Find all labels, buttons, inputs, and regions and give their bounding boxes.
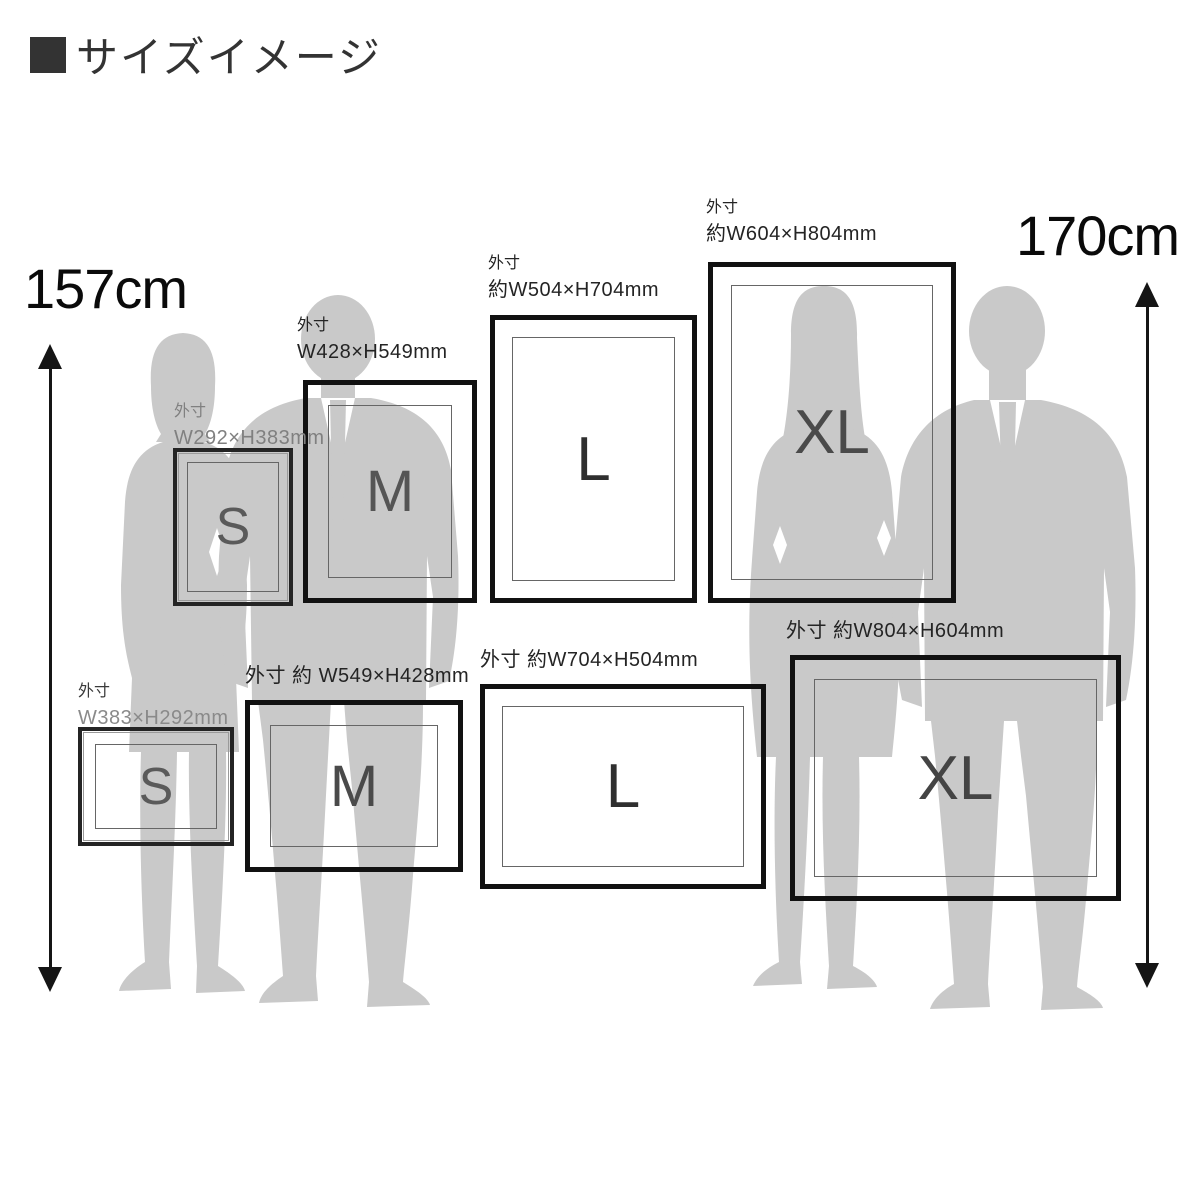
frame-size-letter: S (216, 497, 251, 557)
frame-size-letter: XL (918, 743, 994, 814)
frame-portrait-s-label: 外寸 W292×H383mm (174, 402, 325, 451)
frame-size-letter: M (330, 753, 378, 820)
frame-size-letter: S (139, 757, 174, 817)
height-label-left: 157cm (24, 256, 187, 321)
frame-portrait-xl: XL (708, 262, 956, 603)
frame-portrait-m: M (303, 380, 477, 603)
frame-portrait-l-label: 外寸 約W504×H704mm (488, 254, 659, 303)
frame-size-letter: L (576, 424, 610, 495)
height-arrow-left-shaft (49, 366, 52, 970)
height-arrow-right-shaft (1146, 304, 1149, 966)
page-title-text: サイズイメージ (76, 24, 382, 85)
frame-landscape-xl: XL (790, 655, 1121, 901)
height-arrow-left-down-icon (38, 967, 62, 992)
height-label-right: 170cm (1016, 203, 1179, 268)
frame-landscape-l-label: 外寸 約W704×H504mm (480, 648, 698, 677)
frame-landscape-s-label: 外寸 W383×H292mm (78, 682, 229, 731)
height-arrow-right-down-icon (1135, 963, 1159, 988)
frame-size-letter: M (366, 458, 414, 525)
height-arrow-left-up-icon (38, 344, 62, 369)
title-bullet-square-icon (30, 37, 66, 73)
height-arrow-right-up-icon (1135, 282, 1159, 307)
frame-portrait-s: S (173, 448, 293, 606)
frame-landscape-xl-label: 外寸 約W804×H604mm (786, 619, 1004, 648)
frame-portrait-l: L (490, 315, 697, 603)
frame-landscape-s: S (78, 727, 234, 846)
frame-size-letter: L (606, 751, 640, 822)
page-title: サイズイメージ (30, 24, 382, 85)
frame-size-letter: XL (794, 397, 870, 468)
frame-landscape-l: L (480, 684, 766, 889)
frame-portrait-m-label: 外寸 W428×H549mm (297, 316, 448, 365)
frame-landscape-m-label: 外寸 約 W549×H428mm (245, 664, 469, 693)
frame-portrait-xl-label: 外寸 約W604×H804mm (706, 198, 877, 247)
frame-landscape-m: M (245, 700, 463, 872)
